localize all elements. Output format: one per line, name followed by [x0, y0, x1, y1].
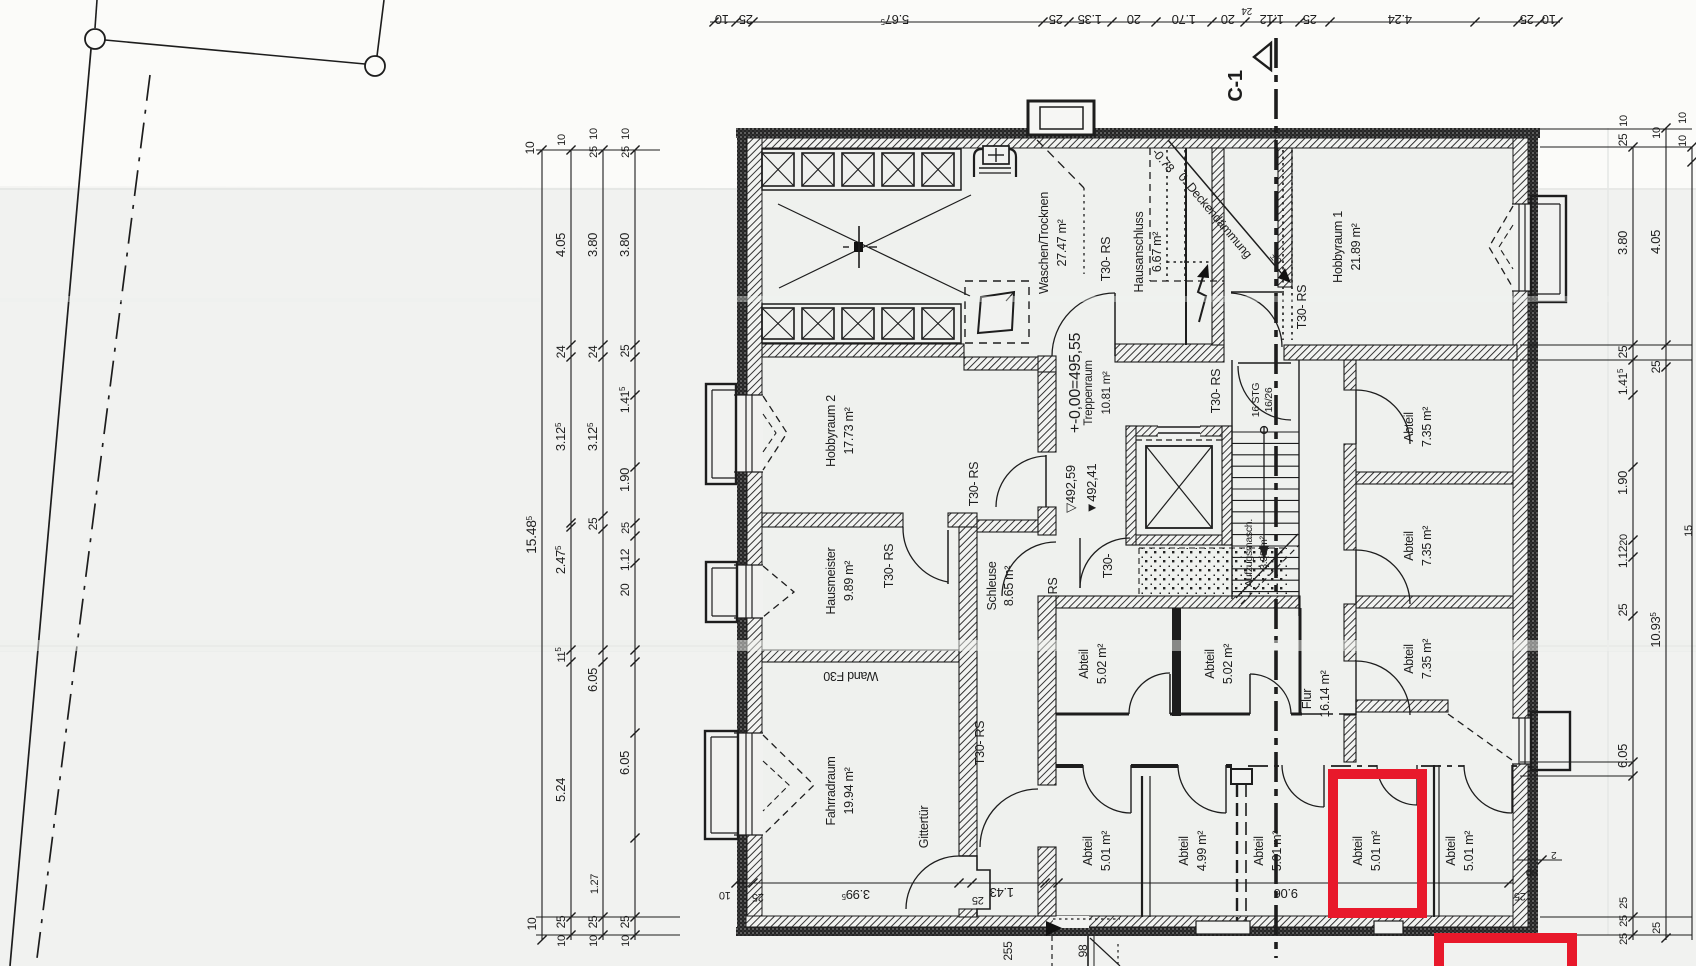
- svg-text:10: 10: [1677, 112, 1689, 124]
- svg-text:25: 25: [586, 517, 600, 530]
- svg-text:9.06: 9.06: [1274, 886, 1298, 901]
- svg-text:Hobbyraum 1: Hobbyraum 1: [1331, 211, 1345, 283]
- svg-text:Flur: Flur: [1300, 689, 1314, 709]
- svg-text:10: 10: [620, 935, 632, 947]
- svg-text:10: 10: [715, 12, 729, 27]
- svg-text:Abteil: Abteil: [1402, 644, 1416, 673]
- svg-text:Abteil: Abteil: [1402, 531, 1416, 560]
- svg-text:Abteil: Abteil: [1077, 649, 1091, 678]
- svg-text:15.485: 15.485: [523, 515, 539, 554]
- svg-text:25: 25: [1651, 922, 1663, 934]
- svg-text:25: 25: [618, 344, 632, 357]
- svg-text:10: 10: [525, 917, 539, 930]
- svg-text:▼492,41: ▼492,41: [1084, 464, 1099, 515]
- svg-text:Fahrradraum: Fahrradraum: [824, 757, 838, 826]
- svg-text:10: 10: [556, 935, 568, 947]
- svg-text:6.67 m²: 6.67 m²: [1150, 232, 1164, 272]
- svg-text:Abteil: Abteil: [1444, 836, 1458, 865]
- svg-text:6.05: 6.05: [617, 751, 632, 775]
- svg-text:Abteil: Abteil: [1177, 836, 1191, 865]
- svg-text:C-1: C-1: [1225, 70, 1247, 102]
- svg-text:1.12: 1.12: [1616, 545, 1630, 568]
- svg-text:T30- RS: T30- RS: [1099, 237, 1113, 281]
- svg-text:1.35: 1.35: [1078, 12, 1102, 27]
- svg-text:10: 10: [523, 141, 537, 154]
- svg-text:3.38 m²: 3.38 m²: [1258, 535, 1270, 569]
- svg-text:Hausmeister: Hausmeister: [824, 547, 838, 614]
- svg-text:10: 10: [1618, 115, 1630, 127]
- svg-text:90: 90: [1526, 866, 1538, 878]
- svg-text:1.90: 1.90: [1615, 471, 1630, 495]
- svg-text:1.70: 1.70: [1172, 12, 1196, 27]
- svg-text:RS: RS: [1046, 578, 1060, 595]
- svg-text:10: 10: [588, 935, 600, 947]
- svg-text:17.73 m²: 17.73 m²: [842, 407, 856, 454]
- svg-text:1.12: 1.12: [1260, 12, 1284, 27]
- svg-text:Hausanschluss: Hausanschluss: [1132, 212, 1146, 293]
- svg-text:Abteil: Abteil: [1402, 412, 1416, 441]
- svg-text:Abteil: Abteil: [1203, 649, 1217, 678]
- svg-text:24: 24: [586, 345, 600, 358]
- svg-text:10: 10: [588, 128, 600, 140]
- svg-text:20: 20: [618, 583, 632, 596]
- svg-text:7.35 m²: 7.35 m²: [1420, 639, 1434, 679]
- svg-text:5.24: 5.24: [553, 778, 568, 802]
- svg-text:10: 10: [719, 889, 731, 901]
- svg-text:3.80: 3.80: [1615, 231, 1630, 255]
- svg-text:25: 25: [1514, 890, 1526, 902]
- svg-text:1.43: 1.43: [990, 885, 1014, 900]
- svg-text:+-0,00=495,55: +-0,00=495,55: [1067, 333, 1084, 434]
- svg-text:9.89 m²: 9.89 m²: [842, 561, 856, 601]
- svg-text:5.02 m²: 5.02 m²: [1221, 644, 1235, 684]
- svg-text:6.05: 6.05: [585, 668, 600, 692]
- svg-text:10: 10: [620, 128, 632, 140]
- svg-text:21.89 m²: 21.89 m²: [1349, 223, 1363, 270]
- svg-text:4.99 m²: 4.99 m²: [1195, 831, 1209, 871]
- svg-text:25: 25: [1303, 12, 1317, 27]
- svg-text:16 STG: 16 STG: [1250, 383, 1262, 418]
- svg-text:20: 20: [1127, 12, 1141, 27]
- svg-text:Abteil: Abteil: [1252, 836, 1266, 865]
- svg-text:Wand F30: Wand F30: [823, 669, 878, 683]
- svg-text:3.80: 3.80: [617, 233, 632, 257]
- svg-text:10: 10: [1542, 12, 1556, 27]
- svg-text:8.65 m²: 8.65 m²: [1002, 566, 1016, 606]
- svg-text:25: 25: [1049, 12, 1063, 27]
- svg-text:7.35 m²: 7.35 m²: [1420, 407, 1434, 447]
- svg-text:6.05: 6.05: [1615, 744, 1630, 768]
- svg-text:98: 98: [1076, 944, 1090, 957]
- svg-text:5.01 m²: 5.01 m²: [1099, 831, 1113, 871]
- svg-text:25: 25: [972, 894, 984, 906]
- svg-text:1.27: 1.27: [589, 874, 601, 894]
- svg-text:16/26: 16/26: [1263, 387, 1275, 412]
- svg-text:27.47 m²: 27.47 m²: [1055, 219, 1069, 266]
- svg-text:1.12: 1.12: [618, 548, 632, 571]
- svg-text:25: 25: [1649, 360, 1663, 373]
- svg-text:Treppenraum: Treppenraum: [1083, 360, 1095, 425]
- svg-text:25: 25: [1616, 345, 1630, 358]
- svg-text:1.90: 1.90: [617, 468, 632, 492]
- svg-text:5.01 m²: 5.01 m²: [1369, 831, 1383, 871]
- svg-text:25: 25: [620, 146, 632, 158]
- svg-text:10.81 m²: 10.81 m²: [1101, 371, 1113, 414]
- svg-text:▽492,59: ▽492,59: [1063, 465, 1078, 513]
- svg-text:25: 25: [1520, 12, 1534, 27]
- svg-text:T30- RS: T30- RS: [882, 544, 896, 588]
- svg-text:20: 20: [1618, 534, 1630, 546]
- svg-text:25: 25: [1616, 603, 1630, 616]
- svg-text:19.94 m²: 19.94 m²: [842, 767, 856, 814]
- svg-text:Waschen/Trocknen: Waschen/Trocknen: [1037, 192, 1051, 294]
- svg-text:10: 10: [556, 134, 568, 146]
- svg-text:16.14 m²: 16.14 m²: [1318, 670, 1332, 717]
- svg-text:2: 2: [1551, 849, 1557, 860]
- svg-text:25: 25: [620, 522, 632, 534]
- svg-text:255: 255: [1001, 941, 1015, 961]
- svg-text:7.35 m²: 7.35 m²: [1420, 526, 1434, 566]
- svg-text:T30- RS: T30- RS: [1295, 285, 1309, 329]
- svg-text:T30- RS: T30- RS: [1209, 369, 1223, 413]
- svg-text:4.05: 4.05: [1648, 230, 1663, 254]
- svg-text:5.02 m²: 5.02 m²: [1095, 644, 1109, 684]
- svg-text:25: 25: [1616, 133, 1630, 146]
- svg-text:25: 25: [588, 146, 600, 158]
- svg-text:Hobbyraum 2: Hobbyraum 2: [824, 395, 838, 467]
- svg-text:25: 25: [739, 12, 753, 27]
- svg-text:3.80: 3.80: [585, 233, 600, 257]
- svg-text:Schleuse: Schleuse: [985, 561, 999, 610]
- svg-text:25: 25: [752, 891, 764, 903]
- svg-text:4.05: 4.05: [553, 233, 568, 257]
- svg-text:5.01 m²: 5.01 m²: [1462, 831, 1476, 871]
- svg-text:Gittertür: Gittertür: [917, 806, 931, 849]
- svg-text:Aufzugsmasch.: Aufzugsmasch.: [1243, 519, 1255, 587]
- svg-text:4.24: 4.24: [1388, 12, 1412, 27]
- svg-text:10: 10: [1677, 135, 1689, 147]
- svg-text:T30-: T30-: [1101, 554, 1115, 579]
- svg-text:T30- RS: T30- RS: [973, 721, 987, 765]
- svg-text:Abteil: Abteil: [1081, 836, 1095, 865]
- svg-text:20: 20: [1221, 12, 1235, 27]
- svg-text:24: 24: [554, 345, 568, 358]
- svg-text:24: 24: [1241, 5, 1252, 16]
- svg-text:15: 15: [1683, 525, 1695, 537]
- svg-text:T30- RS: T30- RS: [967, 462, 981, 506]
- svg-text:10.935: 10.935: [1648, 612, 1663, 648]
- svg-text:Abteil: Abteil: [1351, 836, 1365, 865]
- svg-text:5.01 m²: 5.01 m²: [1270, 831, 1284, 871]
- svg-text:25: 25: [1618, 897, 1630, 909]
